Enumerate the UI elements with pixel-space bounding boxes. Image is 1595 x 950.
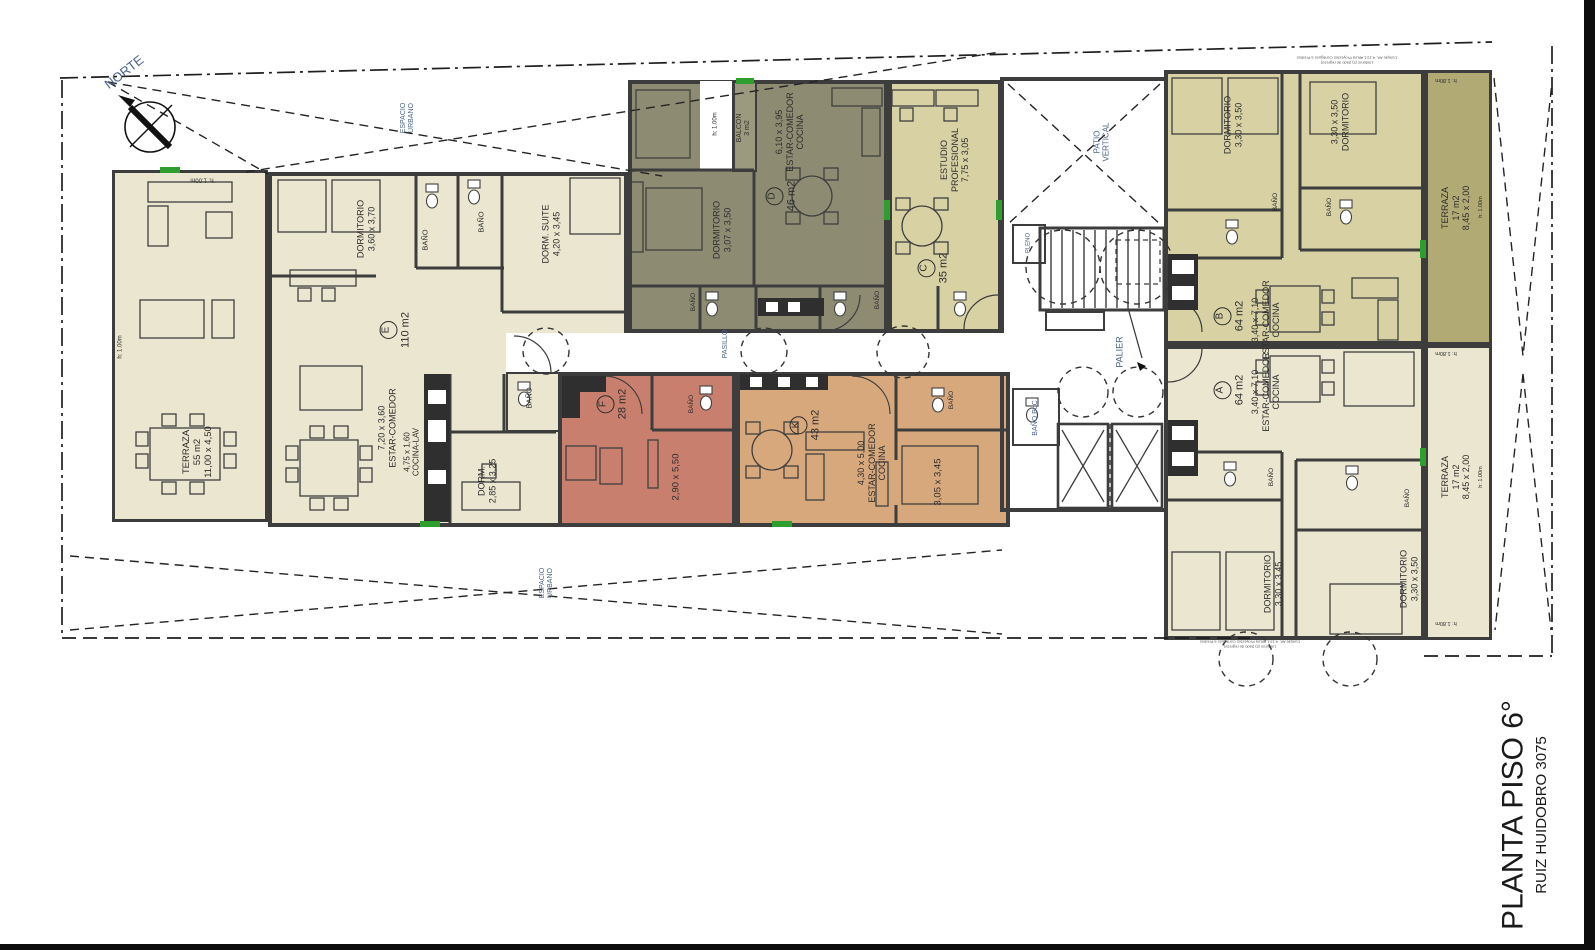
unit-b-dorm2-label: 3,30 x 3,50DORMITORIO	[1329, 93, 1350, 151]
unit-k-estar-label: 4,30 x 5,00ESTAR-COMEDORCOCINA	[856, 423, 888, 502]
north-compass-icon	[118, 95, 175, 152]
floor-plan-canvas: NORTE ESPACIOURBANO ESPACIOURBANO PATIOV…	[0, 0, 1595, 950]
code-note-top: Linderos (s) (lado de regreso)Cumple Art…	[1297, 55, 1398, 64]
unit-e-terrace-height-note-top: h: 1.00m	[190, 175, 213, 182]
unit-f-region	[558, 372, 736, 527]
unit-c-estudio-label: ESTUDIOPROFESIONAL7,75 x 3,05	[939, 128, 971, 192]
code-note-bottom: Linderos (s) (lado de regreso)Cumple Art…	[1200, 639, 1301, 648]
espacio-urbano-label-top: ESPACIOURBANO	[400, 103, 417, 134]
unit-e-bath2-label: BAÑO	[478, 211, 487, 232]
unit-e-badge: E110 m2	[380, 312, 413, 348]
unit-e-dormitorio-label: DORMITORIO3,60 x 3,70	[355, 200, 376, 258]
unit-b-region	[1164, 70, 1425, 345]
right-edge-bar	[1584, 0, 1595, 950]
bottom-edge-bar	[0, 944, 1595, 950]
unit-a-terrace-label: TERRAZA17 m28,45 x 2,00	[1440, 455, 1472, 500]
pasillo-label: PASILLO	[722, 330, 730, 359]
unit-e-dorm-label: DORM.2,85 x 3,25	[476, 459, 497, 504]
pleno-label: PLENO	[1025, 233, 1032, 253]
unit-b-bath1-label: BAÑO	[1272, 193, 1280, 211]
unit-k-badge: K43 m2	[790, 410, 823, 441]
core-west-wall-upper	[1000, 77, 1004, 333]
unit-b-terrace-height-note: h: 1.00m	[1478, 196, 1484, 217]
unit-d-region	[628, 80, 888, 333]
core-west-wall-lower	[1000, 372, 1004, 512]
unit-a-estar-label: 3,40 x 7,10ESTAR-COMEDORCOCINA	[1250, 352, 1282, 431]
unit-e-bath3-label: BAÑO	[526, 387, 535, 408]
height-180-note-3: h: 1.80m	[1435, 620, 1456, 626]
unit-c-region	[888, 80, 1002, 333]
unit-a-terrace-height-note: h: 1.00m	[1478, 466, 1484, 487]
core-top-wall	[1002, 77, 1164, 81]
unit-e-bath1-label: BAÑO	[422, 229, 431, 250]
unit-e-terrace-label: TERRAZA55 m211,00 x 4,50	[181, 426, 215, 478]
unit-b-dorm1-label: DORMITORIO3,30 x 3,50	[1222, 96, 1243, 154]
unit-a-bath1-label: BAÑO	[1268, 468, 1276, 486]
unit-b-estar-label: 3,40 x 7,10ESTAR-COMEDORCOCINA	[1250, 280, 1282, 359]
unit-a-region	[1164, 345, 1425, 640]
unit-a-badge: A64 m2	[1214, 375, 1247, 406]
stairs	[1040, 228, 1164, 358]
unit-d-balcony-height-note: h: 1.00m	[712, 112, 719, 135]
plan-title: PLANTA PISO 6°	[1495, 700, 1530, 930]
unit-c-bath-label: BAÑO	[874, 291, 882, 309]
unit-c-badge: C35 m2	[918, 253, 951, 284]
project-address: RUIZ HUIDOBRO 3075	[1533, 736, 1551, 894]
height-180-note-1: h: 1.80m	[1435, 77, 1456, 83]
unit-e-suite-label: DORM. SUITE4,20 x 3,45	[540, 204, 561, 263]
unit-e-terrace-height-note: h: 1.00m	[117, 335, 124, 358]
unit-d-bath-label: BAÑO	[690, 293, 698, 311]
unit-f-badge: F28 m2	[597, 389, 630, 420]
unit-k-dorm-dim-label: 3,05 x 3,45	[932, 458, 943, 505]
unit-e-cocina-label: 4,75 x 1,60COCINA-LAV	[403, 428, 422, 476]
north-label: NORTE	[101, 52, 146, 92]
bano-pdc-label: BAÑO PdC	[1032, 400, 1040, 435]
unit-f-bath-label: BAÑO	[688, 395, 696, 413]
palier-label: PALIER	[1115, 336, 1126, 367]
unit-a-dorm1-label: DORMITORIO3,30 x 3,45	[1262, 555, 1283, 613]
height-180-note-2: h: 1.80m	[1435, 350, 1456, 356]
unit-d-balcony-label: BALCON3 m2	[736, 114, 753, 143]
unit-a-dorm2-label: DORMITORIO3,30 x 3,50	[1398, 550, 1419, 608]
espacio-urbano-label-bottom: ESPACIOURBANO	[539, 568, 556, 599]
corridor-region	[506, 333, 1010, 372]
unit-e-estar-label: 7,20 x 3,60ESTAR-COMEDOR	[376, 388, 397, 467]
unit-a-bath2-label: BAÑO	[1404, 489, 1412, 507]
core-bottom-wall	[1000, 508, 1168, 512]
unit-b-terrace-label: TERRAZA17 m28,45 x 2,00	[1440, 186, 1472, 231]
unit-k-bath-label: BAÑO	[948, 391, 956, 409]
unit-f-dim-label: 2,90 x 5,50	[670, 453, 681, 500]
unit-d-dormitorio-label: DORMITORIO3,07 x 3,50	[711, 201, 732, 259]
unit-b-bath2-label: BAÑO	[1326, 198, 1334, 216]
unit-d-estar-label: 6,10 x 3,95ESTAR-COMEDORCOCINA	[774, 92, 806, 171]
unit-d-badge: D46 m2	[766, 181, 799, 212]
unit-b-badge: B64 m2	[1214, 301, 1247, 332]
elevators	[1058, 424, 1162, 508]
patio-vertical-label: PATIOVERTICAL	[1093, 123, 1112, 162]
